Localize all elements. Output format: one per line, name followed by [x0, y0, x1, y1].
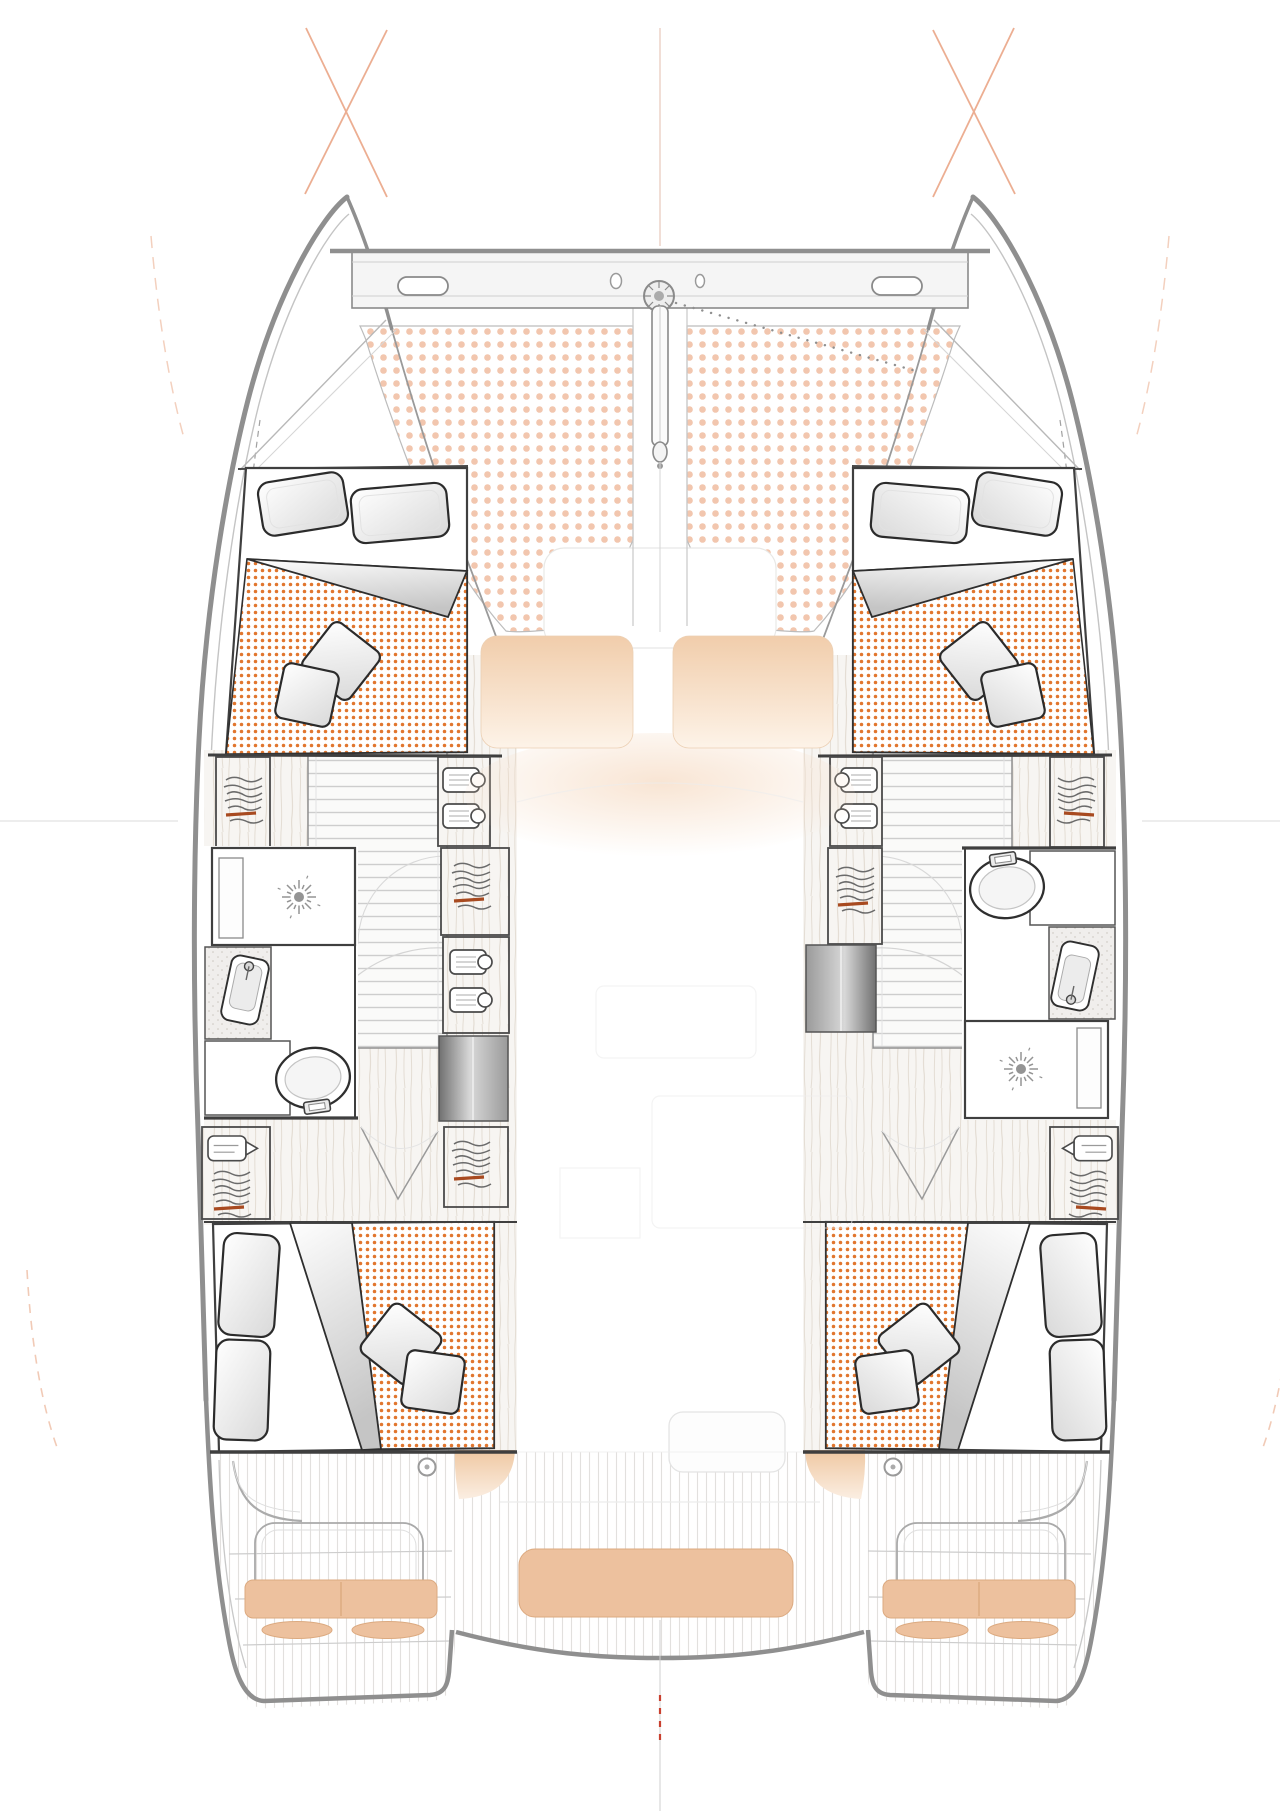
foredeck-glow [465, 733, 855, 857]
cockpit-table [669, 1412, 785, 1472]
foredeck-sunpad-port [481, 636, 633, 748]
beam-cleat-port [398, 277, 448, 295]
floorplan-page [0, 0, 1280, 1811]
bathroom-starboard [962, 848, 1116, 1120]
bathroom-port [204, 846, 358, 1118]
foredeck-sunpad-starboard [673, 636, 833, 748]
floorplan-canvas [0, 0, 1280, 1811]
cockpit-bench-center [519, 1549, 793, 1617]
beam-cleat-starboard [872, 277, 922, 295]
port-inboard-lockers [439, 848, 509, 1207]
